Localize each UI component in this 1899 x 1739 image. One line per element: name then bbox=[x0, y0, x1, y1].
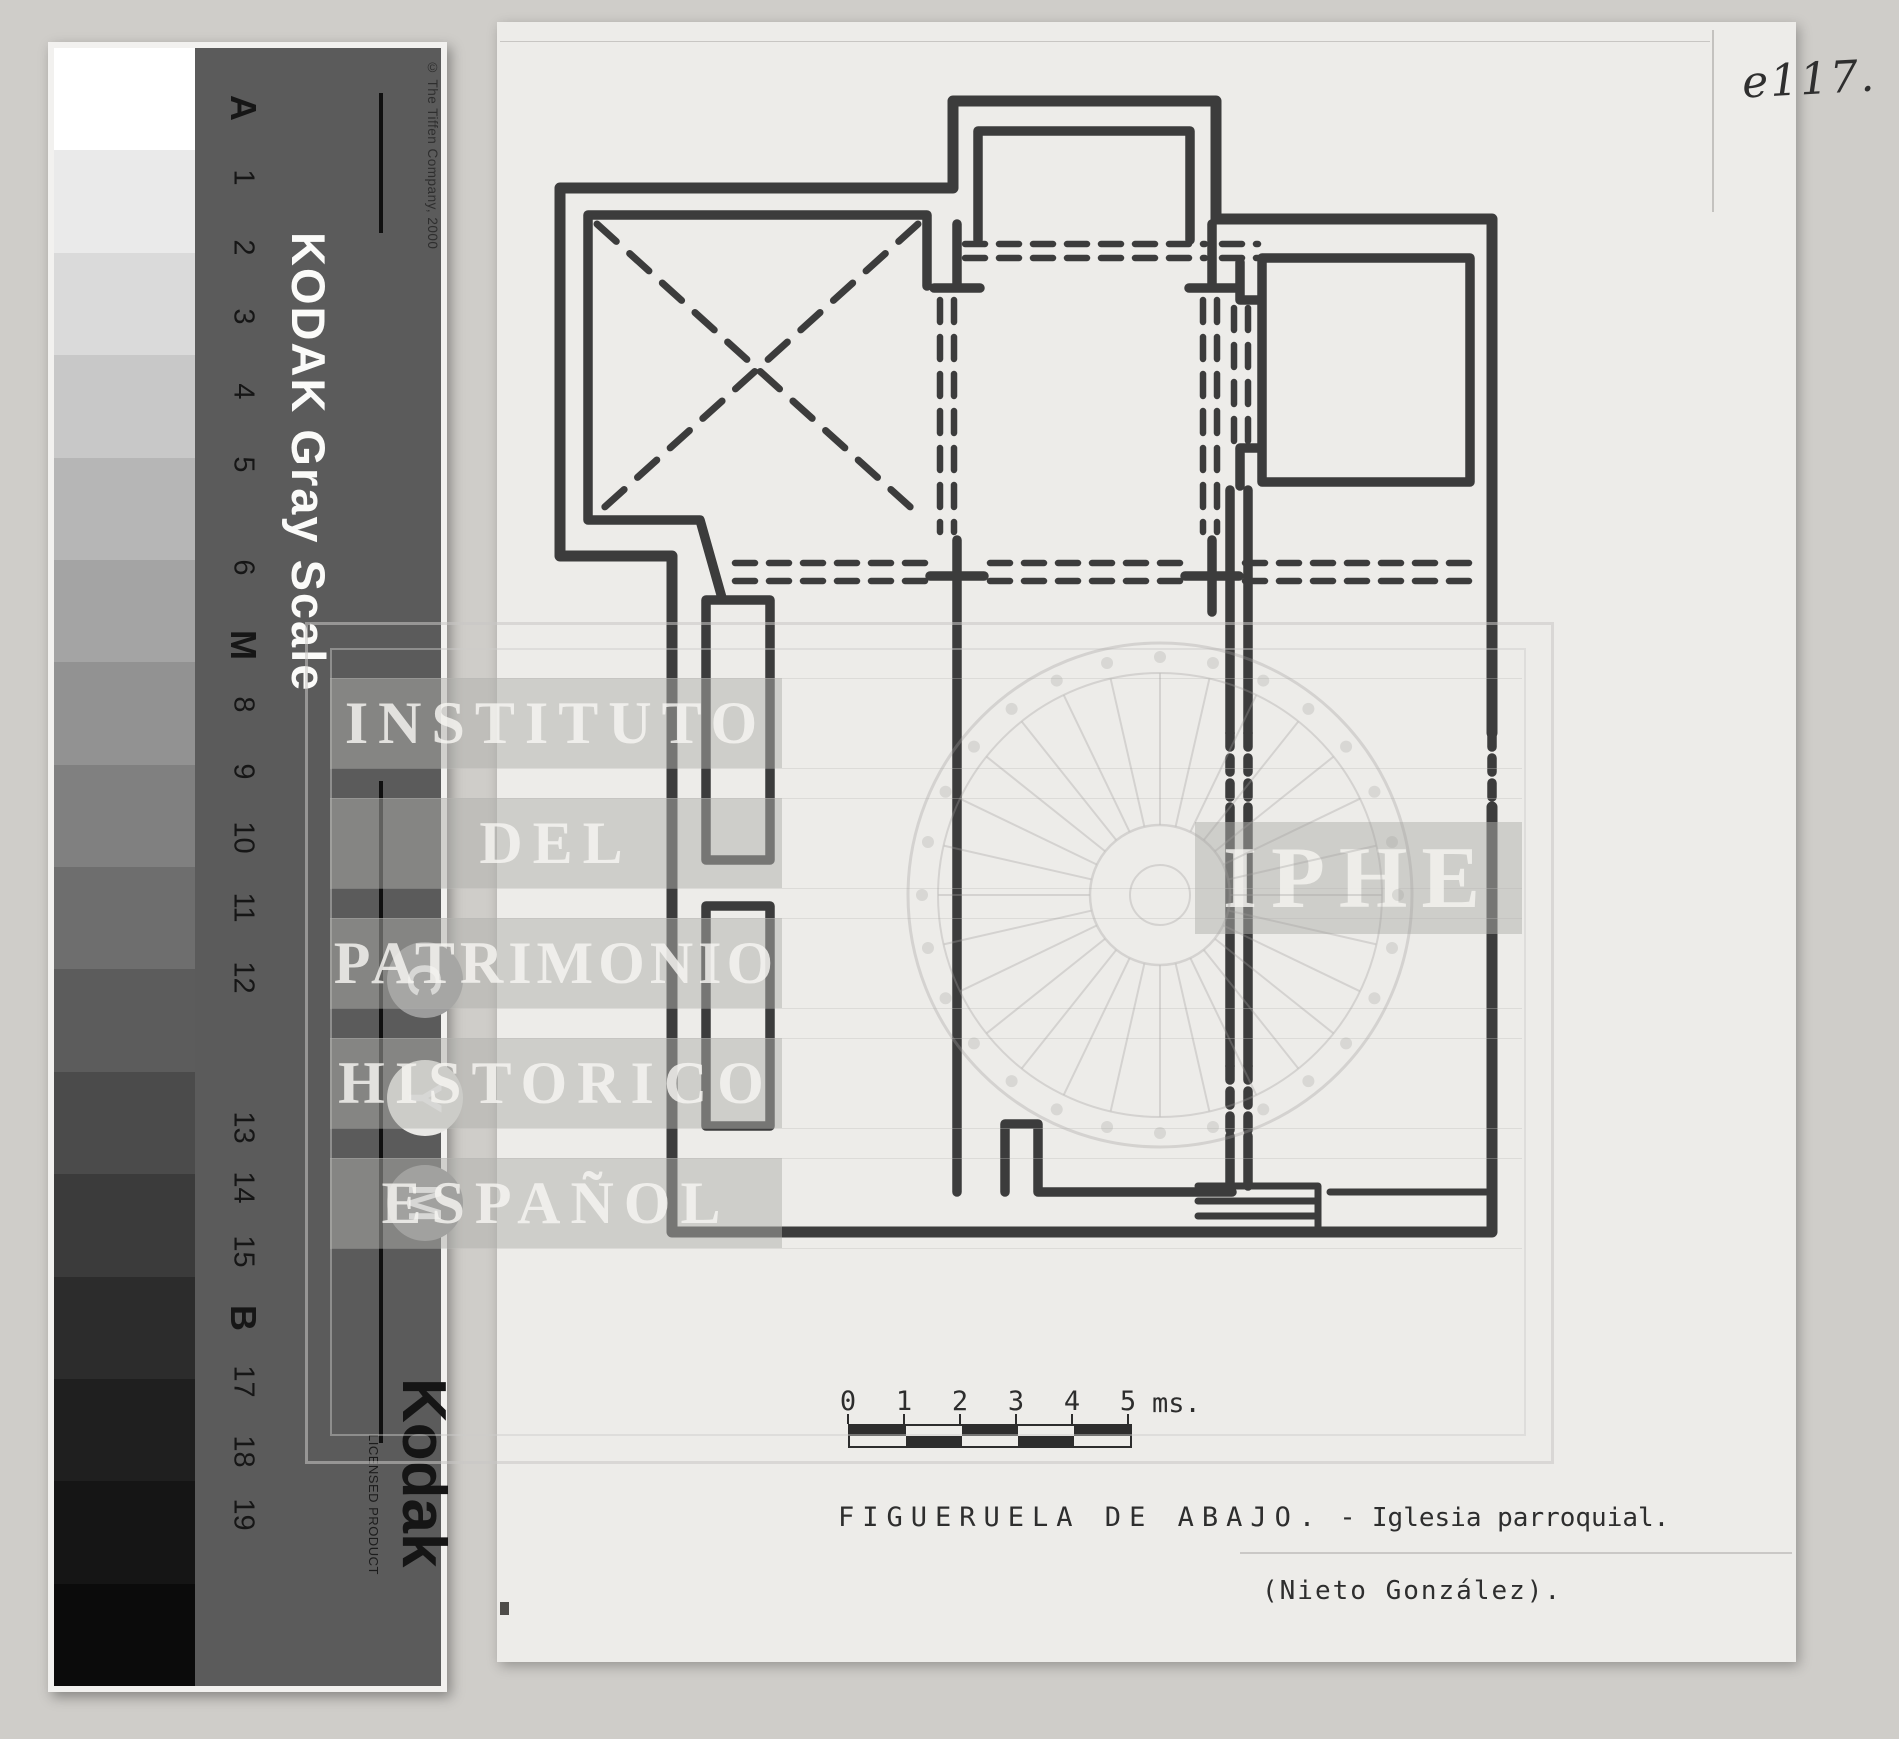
plan-arch-dashes-horizontal bbox=[735, 244, 1480, 581]
plan-wall-openings bbox=[1230, 733, 1492, 1136]
scale-tick bbox=[1071, 1414, 1073, 1424]
scale-tick-label: 4 bbox=[1057, 1386, 1087, 1417]
scale-tick bbox=[1127, 1414, 1129, 1424]
scale-bar-graphic bbox=[848, 1424, 1132, 1448]
floor-plan bbox=[0, 0, 1899, 1739]
scale-unit-label: ms. bbox=[1152, 1388, 1201, 1419]
scale-tick-label: 1 bbox=[889, 1386, 919, 1417]
plan-inner-walls bbox=[588, 131, 1470, 1192]
scale-tick bbox=[1015, 1414, 1017, 1424]
scale-tick bbox=[959, 1414, 961, 1424]
plan-arch-dashes-vertical bbox=[940, 300, 1248, 532]
scale-tick-label: 3 bbox=[1001, 1386, 1031, 1417]
scale-tick bbox=[903, 1414, 905, 1424]
caption-subject: Iglesia parroquial. bbox=[1372, 1503, 1669, 1533]
scale-bar-row bbox=[850, 1436, 1130, 1446]
scale-bar: 0 1 2 3 4 5 ms. bbox=[832, 1386, 1302, 1450]
plan-vault-diagonals bbox=[597, 224, 918, 514]
caption-site: FIGUERUELA DE ABAJO. bbox=[838, 1502, 1323, 1533]
plan-stairs bbox=[1198, 1186, 1486, 1231]
plan-caption-author: (Nieto González). bbox=[1262, 1576, 1562, 1606]
scale-tick bbox=[847, 1414, 849, 1424]
caption-separator: - bbox=[1339, 1502, 1355, 1533]
scale-tick-label: 0 bbox=[833, 1386, 863, 1417]
scanned-archive-page: A 1 2 3 4 5 6 M 8 9 10 11 12 13 14 15 B … bbox=[0, 0, 1899, 1739]
plan-outer-walls bbox=[560, 101, 1492, 1232]
scale-tick-label: 5 bbox=[1113, 1386, 1143, 1417]
scale-bar-row bbox=[850, 1426, 1130, 1436]
plan-caption: FIGUERUELA DE ABAJO. - Iglesia parroquia… bbox=[838, 1502, 1669, 1533]
scale-tick-label: 2 bbox=[945, 1386, 975, 1417]
